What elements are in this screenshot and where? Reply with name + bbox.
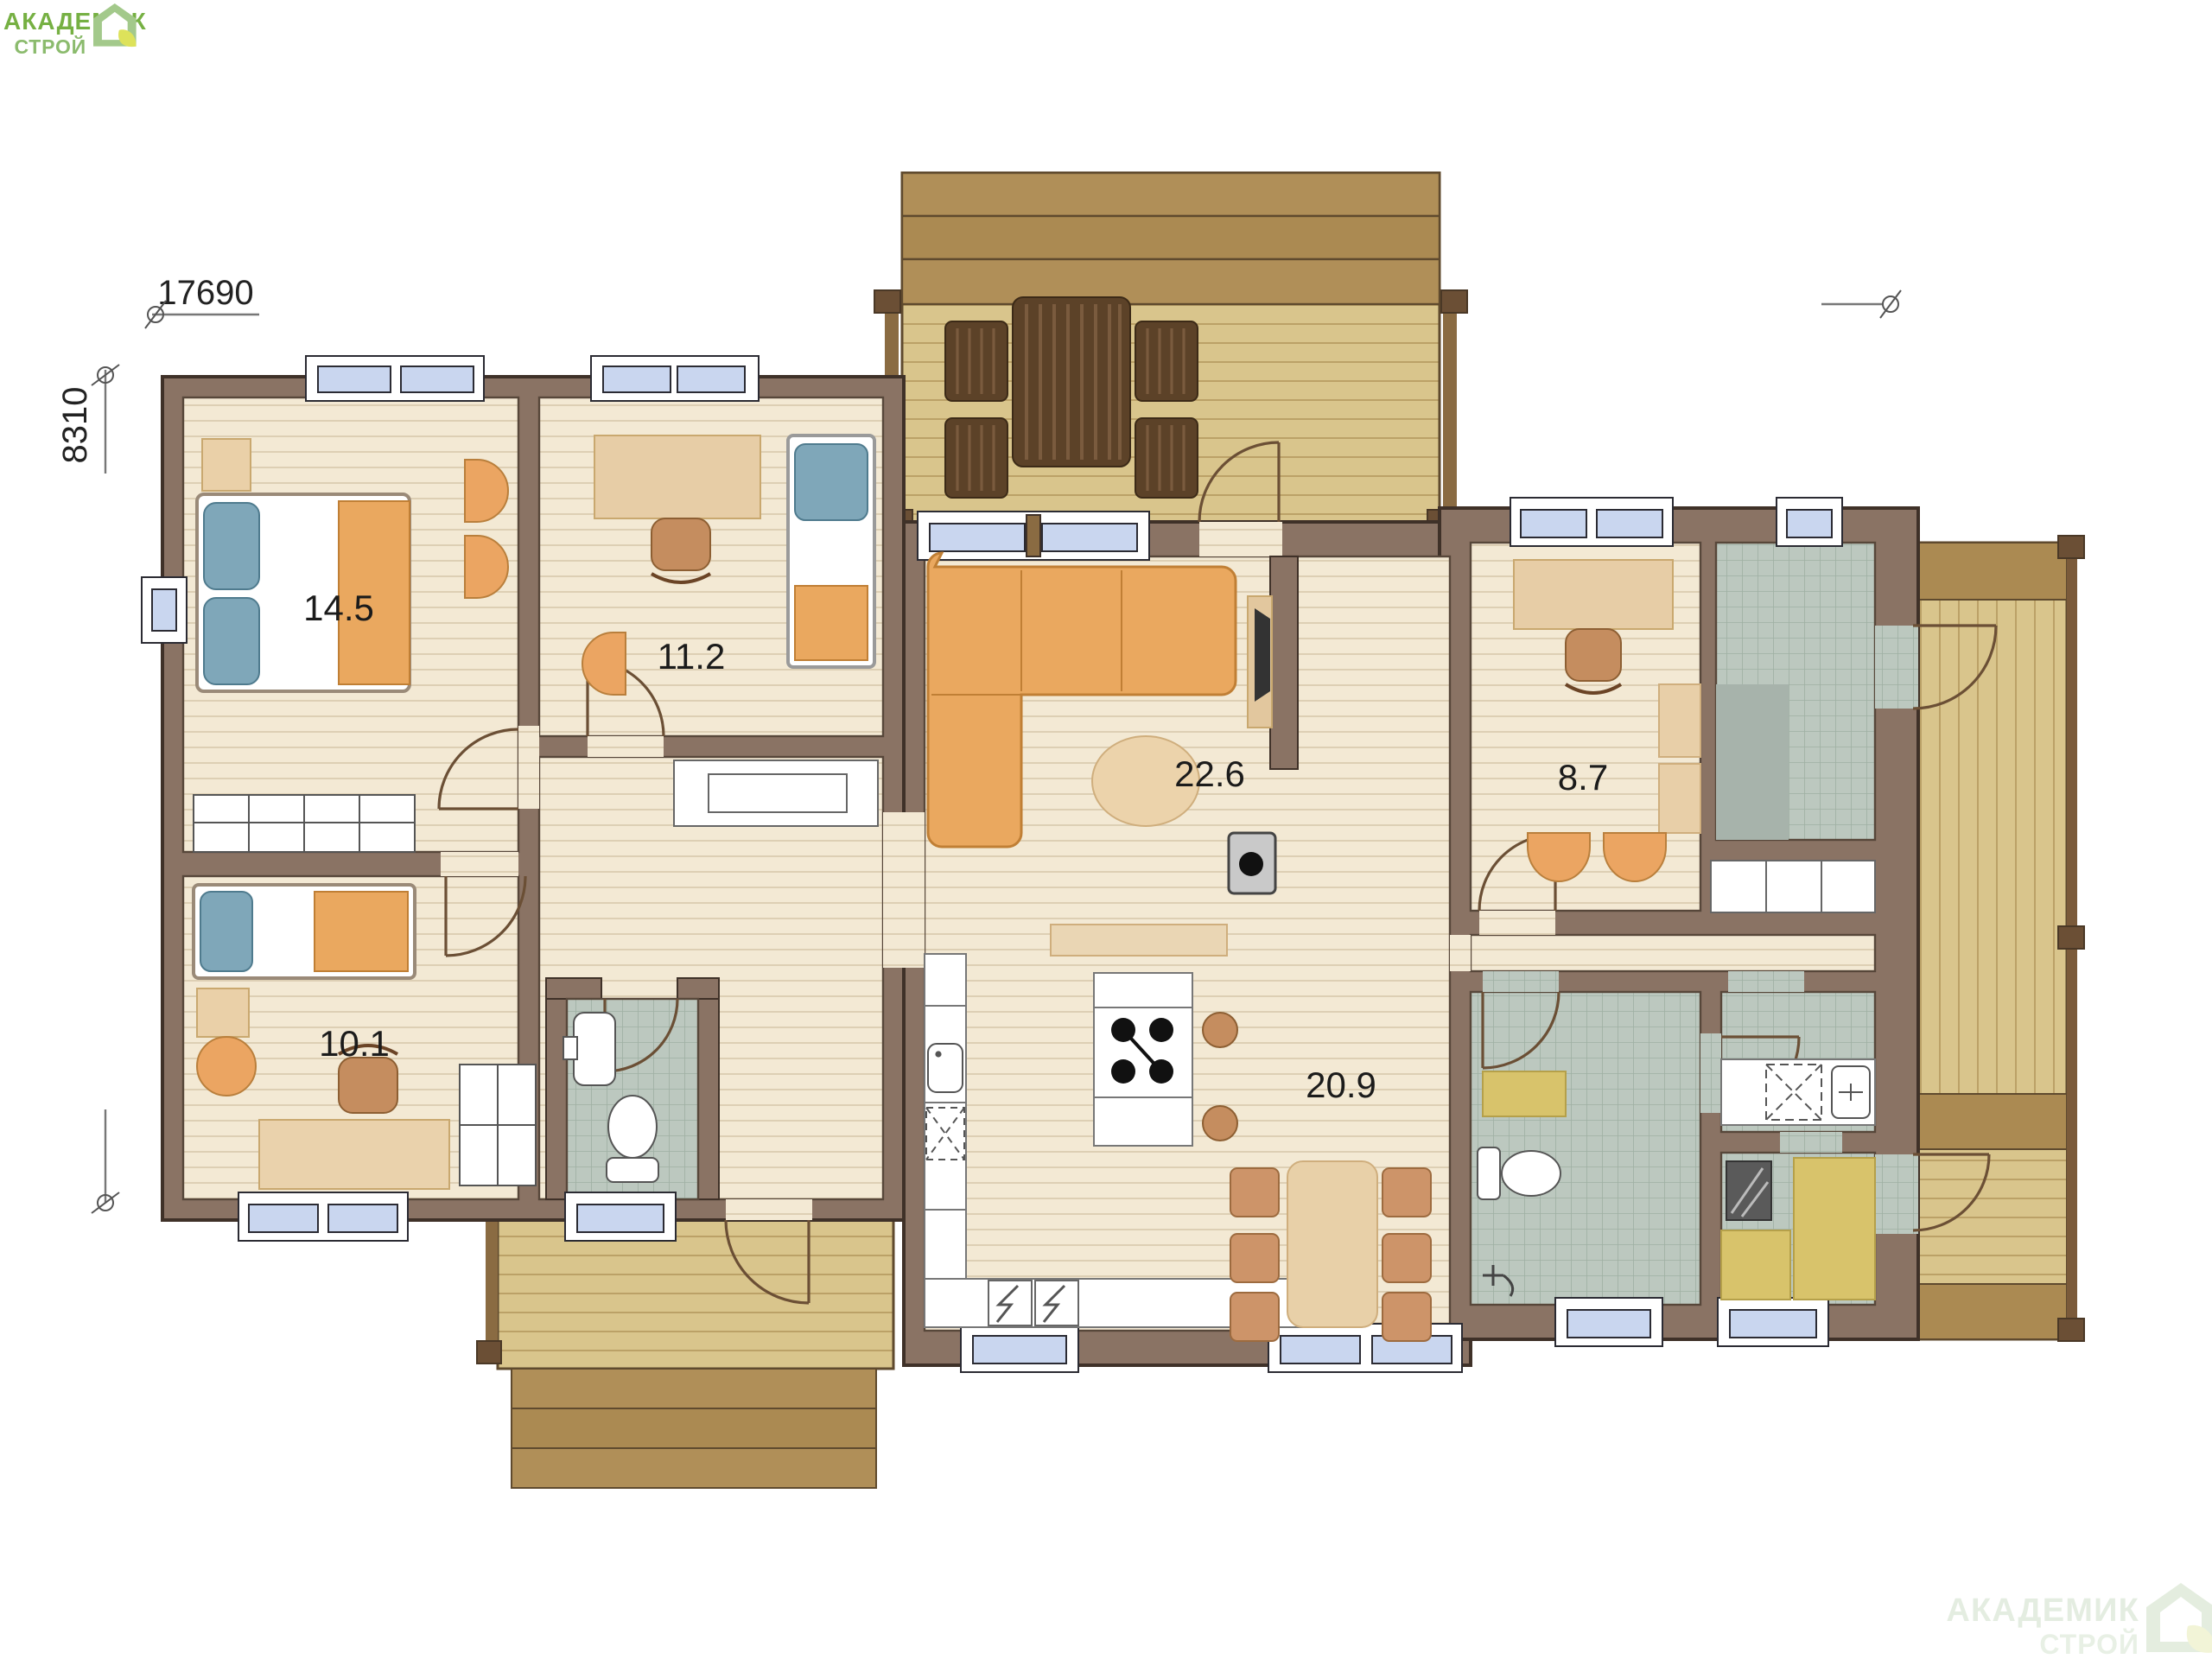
toilet-bowl [608, 1096, 657, 1158]
watermark-text-line1: АКАДЕМИК [1946, 1592, 2139, 1629]
pillow [204, 503, 259, 589]
toilet-tank [1478, 1147, 1500, 1199]
watermark-house-icon [2146, 1583, 2212, 1653]
dining-table [1287, 1161, 1377, 1327]
label-kitchen-dining: 20.9 [1306, 1065, 1376, 1105]
door-opening [588, 736, 664, 757]
desk [594, 435, 760, 518]
door-opening [1199, 522, 1282, 556]
kitchen-sink [928, 1044, 963, 1092]
door-opening [1483, 971, 1559, 992]
porch-step [512, 1369, 876, 1408]
door-opening [726, 1199, 812, 1220]
tv [1255, 608, 1270, 702]
bar-stool [1203, 1106, 1237, 1141]
bed-blanket [315, 892, 408, 971]
terrace-post [2058, 926, 2084, 949]
logo-text-line2: СТРОЙ [14, 35, 86, 58]
sauna-heater [1726, 1161, 1771, 1220]
terrace-dining-table [1013, 297, 1130, 467]
window-wc [565, 1192, 676, 1241]
window-bedroom-office [591, 356, 759, 401]
label-office: 8.7 [1558, 757, 1608, 798]
wardrobe [194, 795, 415, 852]
round-chair [197, 1037, 256, 1096]
appliance [1035, 1281, 1078, 1325]
terrace-post [2058, 1319, 2084, 1341]
porch-post [477, 1341, 501, 1363]
bed-blanket [795, 586, 868, 660]
sideboard [1051, 925, 1227, 956]
window-kitchen [961, 1324, 1078, 1372]
toilet-bowl [1502, 1151, 1560, 1196]
entrance-porch [477, 1220, 893, 1488]
floor-bathroom [1471, 992, 1700, 1305]
desk-chair [339, 1058, 397, 1113]
terrace-step [902, 216, 1440, 259]
porch-step [512, 1448, 876, 1488]
dimension-height: 8310 [56, 365, 119, 1213]
wc-tap [563, 1037, 577, 1059]
stove-flue [1239, 852, 1263, 876]
nightstand [197, 988, 249, 1037]
bench [1483, 1071, 1566, 1116]
desk [1514, 560, 1673, 629]
utility-fixtures [1721, 1059, 1875, 1125]
dishwasher [988, 1281, 1032, 1325]
wc-wall [698, 999, 719, 1199]
pillow [795, 444, 868, 520]
door-opening [518, 726, 539, 809]
terrace-post [2058, 536, 2084, 558]
watermark-logo: АКАДЕМИК СТРОЙ [1946, 1583, 2212, 1659]
window-office [1510, 498, 1673, 546]
terrace-post [874, 290, 900, 313]
door-opening [1479, 911, 1555, 935]
sauna-bench [1721, 1230, 1790, 1300]
window-sauna [1718, 1298, 1828, 1346]
wc-wall [546, 999, 567, 1199]
window-living [918, 512, 1149, 560]
passage-opening [1450, 935, 1471, 971]
door-opening [1728, 971, 1804, 992]
door-opening [1700, 1033, 1721, 1113]
label-living-room: 22.6 [1174, 753, 1245, 794]
window-left-wall [142, 577, 187, 643]
porch-deck [498, 1220, 893, 1369]
wc-wall [546, 978, 601, 999]
terrace-step [1913, 543, 2067, 600]
top-terrace [874, 173, 1467, 539]
fridge [926, 1108, 964, 1160]
label-bedroom-master: 14.5 [303, 588, 374, 628]
door-opening [441, 852, 518, 876]
pillow [200, 892, 252, 971]
dim-height-text: 8310 [56, 387, 94, 464]
floor-plan-page: 14.5 11.2 22.6 8.7 10.1 20.9 17690 8310 … [0, 0, 2212, 1659]
terrace-step [902, 173, 1440, 216]
right-terrace-lower-deck [1913, 1149, 2067, 1284]
window-bedroom-master [306, 356, 484, 401]
shelf [1659, 684, 1700, 757]
watermark-text-line2: СТРОЙ [2039, 1629, 2139, 1659]
entry-cabinet [1711, 861, 1875, 912]
shelf [1659, 764, 1700, 833]
wc-sink [574, 1013, 615, 1085]
sauna-bench [1794, 1158, 1875, 1300]
desk [259, 1120, 449, 1189]
logo: АКАДЕМИК СТРОЙ [3, 3, 147, 58]
porch-rail [486, 1220, 498, 1351]
terrace-rail-right [1443, 304, 1457, 532]
label-bedroom-small: 10.1 [319, 1023, 390, 1064]
floor-plan-canvas: 14.5 11.2 22.6 8.7 10.1 20.9 17690 8310 … [0, 0, 2212, 1659]
pillow [204, 598, 259, 684]
wardrobe [460, 1065, 536, 1185]
door-opening [1875, 1154, 1918, 1234]
window-entry-small [1777, 498, 1842, 546]
entry-mat [1716, 684, 1789, 840]
bar-stool [1203, 1013, 1237, 1047]
window-bathroom [1555, 1298, 1662, 1346]
dim-width-text: 17690 [157, 274, 253, 312]
label-bedroom-office: 11.2 [658, 636, 726, 677]
desk-chair [652, 518, 710, 570]
door-opening [1875, 626, 1918, 709]
wc-wall [677, 978, 719, 999]
nightstand [202, 439, 251, 491]
door-opening [1780, 1132, 1842, 1153]
terrace-post [1441, 290, 1467, 313]
window-dining [1268, 1324, 1462, 1372]
toilet-tank [607, 1158, 658, 1182]
porch-step [512, 1408, 876, 1448]
passage-opening [883, 812, 925, 968]
kitchen-island [1094, 973, 1192, 1146]
terrace-step [1913, 1284, 2067, 1339]
floor-back-corridor [1471, 935, 1875, 971]
hall-cabinet [674, 760, 878, 826]
terrace-step [902, 259, 1440, 304]
desk-chair [1566, 629, 1621, 681]
tv-wall [1270, 556, 1298, 769]
window-bedroom-small [238, 1192, 408, 1241]
terrace-step [1913, 1094, 2067, 1149]
right-terrace [1913, 536, 2084, 1341]
